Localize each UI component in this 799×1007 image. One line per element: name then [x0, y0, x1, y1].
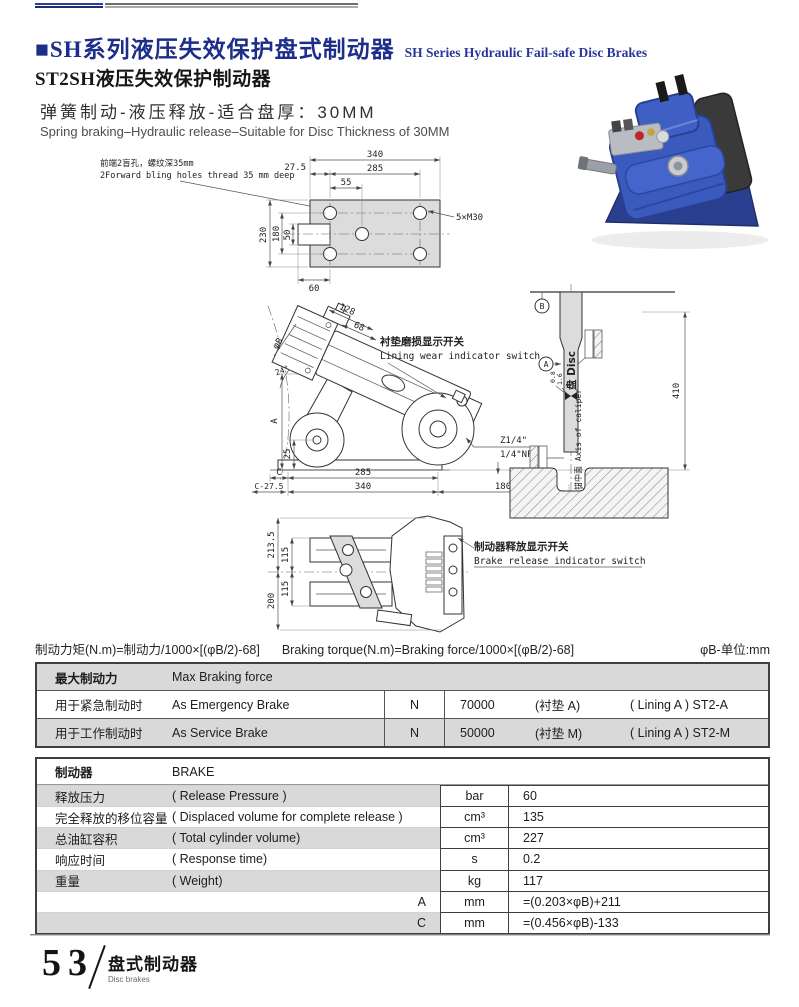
dim-340: 340 [367, 150, 383, 160]
dim-180-side: 180 [495, 482, 511, 492]
dim-285-side: 285 [355, 468, 371, 478]
dim-180: 180 [272, 226, 282, 242]
max-braking-force-table: 最大制动力 Max Braking force 用于紧急制动时 As Emerg… [35, 662, 770, 748]
row-label-cn: 重量 [55, 871, 172, 890]
dim-213-5: 213.5 [267, 531, 277, 558]
dim-230: 230 [259, 227, 269, 243]
dim-25: 25 [283, 449, 293, 460]
lining-cn: (衬垫 A) [535, 695, 630, 714]
dim-A: A [270, 418, 280, 424]
row-label-cn: 释放压力 [55, 787, 172, 806]
value-cell: 0.2 [508, 848, 768, 869]
dim-1-6: 1.6 [556, 373, 564, 385]
value-cell: 135 [508, 806, 768, 827]
unit-note: φB-单位:mm [700, 639, 770, 658]
top-view-drawing: 前端2盲孔，螺纹深35mm 2Forward bling holes threa… [100, 150, 483, 294]
brake-release-switch-label-cn: 制动器释放显示开关 [474, 540, 569, 553]
top-bar-gray [105, 3, 358, 5]
table-header-row: 最大制动力 Max Braking force [37, 664, 768, 690]
row-label-en: ( Total cylinder volume) [172, 831, 300, 845]
lining-cn: (衬垫 M) [535, 723, 630, 742]
table-row: 释放压力 ( Release Pressure ) bar 60 [37, 785, 768, 806]
datum-A-label: A [544, 360, 549, 369]
dim-60: 60 [309, 284, 320, 294]
dimension-key: C [417, 916, 426, 930]
disc-section-drawing: B A 盘 Disc 0.8 1.6 卡钳中 [510, 284, 675, 518]
value-cell: 227 [508, 827, 768, 848]
dim-55: 55 [341, 178, 352, 188]
header-label-cn: 制动器 [55, 762, 172, 781]
unit-cell: mm [440, 912, 508, 933]
feature-line-en: Spring braking–Hydraulic release–Suitabl… [40, 124, 449, 139]
table-row: A mm =(0.203×φB)+211 [37, 891, 768, 912]
lining-en: ( Lining A ) ST2-M [630, 726, 730, 740]
unit-cell: N [384, 719, 445, 746]
disc-label: 盘 Disc [565, 351, 578, 390]
value-cell: =(0.203×φB)+211 [508, 891, 768, 912]
foundation-section [510, 468, 668, 518]
dim-50: 50 [283, 230, 293, 241]
table-row: 重量 ( Weight) kg 117 [37, 870, 768, 891]
dim-C-27-5: C-27.5 [255, 482, 284, 491]
unit-cell: N [384, 691, 445, 718]
row-label-en: ( Response time) [172, 852, 267, 866]
top-bar-blue [35, 3, 103, 5]
page-header: ■SH系列液压失效保护盘式制动器 SH Series Hydraulic Fai… [35, 30, 647, 64]
brake-spec-table: 制动器 BRAKE 释放压力 ( Release Pressure ) bar … [35, 757, 770, 935]
feature-line-cn: 弹簧制动-液压释放-适合盘厚：30MM [40, 98, 377, 123]
plate-notch [298, 224, 330, 245]
table-row: 用于工作制动时 As Service Brake N 50000 (衬垫 M) … [37, 718, 768, 746]
top-view-note-en: 2Forward bling holes thread 35 mm deep [100, 171, 294, 181]
table-row: 总油缸容积 ( Total cylinder volume) cm³ 227 [37, 827, 768, 848]
table-row: 响应时间 ( Response time) s 0.2 [37, 848, 768, 869]
lining-wear-switch-label-cn: 衬垫磨损显示开关 [380, 335, 464, 348]
torque-formula-en: Braking torque(N.m)=Braking force/1000×[… [282, 643, 574, 657]
dim-115-lower: 115 [281, 581, 291, 597]
unit-cell: kg [440, 870, 508, 891]
side-view-drawing: φB 24° 128 68 A 25 C 285 C-27.5 340 180 … [252, 288, 690, 496]
header-label-en: Max Braking force [172, 670, 273, 684]
unit-cell: mm [440, 891, 508, 912]
value-cell: =(0.456×φB)-133 [508, 912, 768, 933]
dimension-key: A [418, 895, 426, 909]
row-label-cn: 响应时间 [55, 850, 172, 869]
section-title-cn: 盘式制动器 [108, 950, 198, 975]
value-cell: 60 [508, 785, 768, 806]
plan-view-drawing: 213.5 200 115 115 制动器释放显示开关 Brake releas… [267, 516, 646, 632]
model-title: ST2SH液压失效保护制动器 [35, 64, 271, 91]
row-label-cn: 用于紧急制动时 [55, 695, 172, 714]
value-cell: 117 [508, 870, 768, 891]
row-label-en: As Service Brake [172, 726, 268, 740]
row-label-cn: 用于工作制动时 [55, 723, 172, 742]
row-label-en: As Emergency Brake [172, 698, 289, 712]
unit-cell: cm³ [440, 806, 508, 827]
footer-rule [30, 934, 770, 936]
dim-340-side: 340 [355, 482, 371, 492]
dim-27-5: 27.5 [284, 163, 306, 173]
thread-spec-label: 5×M30 [456, 213, 483, 223]
value-cell: 50000 [460, 726, 535, 740]
header-label-cn: 最大制动力 [55, 668, 172, 687]
table-row: 完全释放的移位容量 ( Displaced volume for complet… [37, 806, 768, 827]
unit-cell: cm³ [440, 827, 508, 848]
technical-drawings: 前端2盲孔，螺纹深35mm 2Forward bling holes threa… [30, 140, 770, 640]
unit-cell: s [440, 848, 508, 869]
row-label-cn: 完全释放的移位容量 [55, 808, 172, 827]
table-row: 用于紧急制动时 As Emergency Brake N 70000 (衬垫 A… [37, 690, 768, 718]
torque-formula-row: 制动力矩(N.m)=制动力/1000×[(φB/2)-68] Braking t… [35, 639, 770, 658]
lining-en: ( Lining A ) ST2-A [630, 698, 728, 712]
header-label-en: BRAKE [172, 765, 214, 779]
dim-285: 285 [367, 164, 383, 174]
caliper-axis-label: 卡钳中面 Axis of caliper [573, 389, 583, 498]
top-bar-gray-shadow [105, 6, 358, 8]
dim-410: 410 [672, 383, 682, 399]
value-cell: 70000 [460, 698, 535, 712]
dim-115-upper: 115 [281, 547, 291, 563]
unit-cell: bar [440, 785, 508, 806]
datum-B-label: B [540, 302, 545, 311]
section-title-en: Disc brakes [108, 975, 198, 984]
row-label-en: ( Displaced volume for complete release … [172, 810, 403, 824]
series-title-cn: ■SH系列液压失效保护盘式制动器 [35, 30, 395, 64]
page-footer: 53 盘式制动器 Disc brakes [42, 944, 198, 990]
torque-formula-cn: 制动力矩(N.m)=制动力/1000×[(φB/2)-68] [35, 639, 260, 658]
port-label-z14: Z1/4" [500, 436, 527, 446]
lining-wear-switch-label-en: Lining wear indicator switch [380, 351, 540, 362]
row-label-cn: 总油缸容积 [55, 829, 172, 848]
series-title-en: SH Series Hydraulic Fail-safe Disc Brake… [405, 45, 648, 64]
page-number: 53 [42, 944, 94, 984]
table-row: C mm =(0.456×φB)-133 [37, 912, 768, 933]
top-view-note-cn: 前端2盲孔，螺纹深35mm [100, 158, 194, 169]
row-label-en: ( Release Pressure ) [172, 789, 287, 803]
brake-release-switch-label-en: Brake release indicator switch [474, 556, 646, 567]
row-label-en: ( Weight) [172, 874, 222, 888]
table-header-row: 制动器 BRAKE [37, 759, 768, 785]
top-bar-blue-shadow [35, 6, 103, 8]
dim-68: 68 [352, 320, 366, 334]
dim-C: C [276, 468, 281, 478]
dim-200: 200 [267, 593, 277, 609]
